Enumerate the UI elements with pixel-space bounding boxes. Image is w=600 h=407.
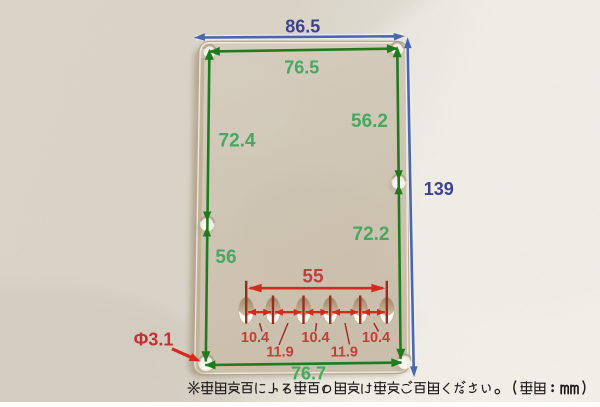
svg-text:10.4: 10.4 — [301, 330, 329, 346]
svg-text:56.2: 56.2 — [351, 111, 388, 132]
svg-text:76.5: 76.5 — [284, 58, 319, 78]
svg-text:72.4: 72.4 — [219, 131, 256, 152]
svg-text:10.4: 10.4 — [362, 330, 390, 346]
svg-text:11.9: 11.9 — [331, 344, 358, 360]
svg-text:55: 55 — [302, 267, 324, 288]
svg-text:10.4: 10.4 — [241, 330, 269, 346]
svg-text:139: 139 — [424, 179, 454, 199]
svg-text:86.5: 86.5 — [285, 17, 320, 37]
svg-text:56: 56 — [215, 247, 236, 268]
svg-text:11.9: 11.9 — [266, 344, 293, 360]
svg-text:72.2: 72.2 — [353, 224, 390, 245]
svg-text:76.7: 76.7 — [291, 364, 326, 384]
svg-text:Φ3.1: Φ3.1 — [134, 330, 174, 350]
